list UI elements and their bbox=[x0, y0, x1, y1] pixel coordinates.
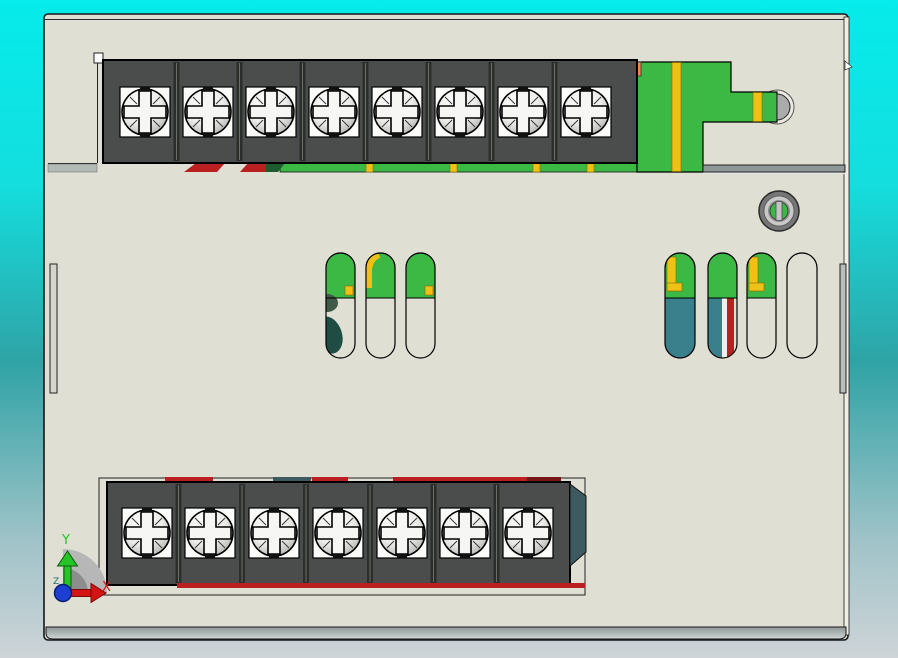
triad-origin-z[interactable] bbox=[55, 585, 72, 602]
terminal-screw[interactable] bbox=[498, 87, 548, 137]
screw-top-nub bbox=[205, 508, 215, 512]
screw-bottom-nub bbox=[142, 554, 152, 558]
screw-bottom-nub bbox=[329, 133, 339, 137]
terminal-screw[interactable] bbox=[435, 87, 485, 137]
pcb-yellow-tick bbox=[366, 163, 373, 172]
screw-top-nub bbox=[269, 508, 279, 512]
pcb-slot-right-2[interactable] bbox=[708, 253, 737, 360]
pcb-yellow-tick bbox=[587, 163, 594, 172]
trimmer-slot[interactable] bbox=[776, 202, 782, 221]
pcb-yellow-tick bbox=[533, 163, 540, 172]
slot-yellow-pad bbox=[425, 286, 433, 295]
screw-top-nub bbox=[581, 87, 591, 91]
slot-component-teal bbox=[665, 298, 695, 358]
pcb-green-strip bbox=[280, 163, 640, 172]
slot-white-stripe bbox=[722, 298, 727, 360]
screw-top-nub bbox=[266, 87, 276, 91]
pcb-slot-left-3[interactable] bbox=[406, 253, 435, 358]
screw-bottom-nub bbox=[397, 554, 407, 558]
screw-top-nub bbox=[523, 508, 533, 512]
screw-top-nub bbox=[142, 508, 152, 512]
enclosure-bottom-side bbox=[46, 627, 846, 639]
terminal-screw[interactable] bbox=[377, 508, 427, 558]
screw-top-nub bbox=[329, 87, 339, 91]
x-axis-label: X bbox=[102, 580, 111, 595]
slot-yellow-pad bbox=[345, 286, 353, 295]
y-axis-label: Y bbox=[61, 533, 70, 548]
terminal-screw[interactable] bbox=[120, 87, 170, 137]
slot-yellow-trace bbox=[667, 283, 682, 291]
slot-pcb-green bbox=[708, 253, 737, 298]
terminal-screw[interactable] bbox=[313, 508, 363, 558]
pcb-slot-right-3[interactable] bbox=[747, 253, 776, 358]
screw-bottom-nub bbox=[460, 554, 470, 558]
screw-top-nub bbox=[140, 87, 150, 91]
screw-top-nub bbox=[392, 87, 402, 91]
screw-top-nub bbox=[203, 87, 213, 91]
screw-top-nub bbox=[397, 508, 407, 512]
screw-bottom-nub bbox=[518, 133, 528, 137]
screw-bottom-nub bbox=[203, 133, 213, 137]
screw-bottom-nub bbox=[205, 554, 215, 558]
terminal-screw[interactable] bbox=[372, 87, 422, 137]
terminal-screw[interactable] bbox=[183, 87, 233, 137]
cad-viewport[interactable]: Y Z X bbox=[0, 0, 898, 658]
pcb-slot-left-2[interactable] bbox=[366, 253, 395, 358]
screw-bottom-nub bbox=[333, 554, 343, 558]
terminal-screw[interactable] bbox=[246, 87, 296, 137]
screw-bottom-nub bbox=[266, 133, 276, 137]
left-rail-slot[interactable] bbox=[50, 264, 57, 393]
slot-yellow-trace bbox=[749, 283, 764, 291]
pocket-corner-tab bbox=[94, 53, 103, 63]
pcb-yellow-stripe bbox=[672, 63, 681, 172]
terminal-screw[interactable] bbox=[503, 508, 553, 558]
terminal-end-face bbox=[570, 484, 586, 566]
slot-red-stripe bbox=[727, 298, 734, 360]
pcb-yellow-tick bbox=[450, 163, 457, 172]
screw-bottom-nub bbox=[455, 133, 465, 137]
bottom-terminal-block[interactable] bbox=[107, 482, 586, 588]
pcb-slot-right-1[interactable] bbox=[665, 253, 695, 358]
terminal-screw[interactable] bbox=[122, 508, 172, 558]
bottom-terminal-screws bbox=[122, 508, 553, 558]
screw-top-nub bbox=[455, 87, 465, 91]
pcb-edge-strip[interactable] bbox=[184, 163, 640, 172]
screw-bottom-nub bbox=[140, 133, 150, 137]
pcb-slot-right-4[interactable] bbox=[787, 253, 817, 358]
recess-step-bar bbox=[703, 165, 845, 172]
screw-top-nub bbox=[333, 508, 343, 512]
terminal-screw[interactable] bbox=[309, 87, 359, 137]
screw-bottom-nub bbox=[523, 554, 533, 558]
terminal-screw[interactable] bbox=[249, 508, 299, 558]
pcb-red-bottom-stripe bbox=[177, 583, 585, 588]
terminal-screw[interactable] bbox=[440, 508, 490, 558]
screw-top-nub bbox=[518, 87, 528, 91]
adjustment-hole[interactable] bbox=[759, 191, 799, 231]
screw-bottom-nub bbox=[392, 133, 402, 137]
pcb-slots-left-group[interactable] bbox=[311, 253, 435, 358]
right-rail-slot[interactable] bbox=[840, 264, 846, 393]
pcb-yellow-stripe-tab bbox=[753, 93, 762, 122]
screw-bottom-nub bbox=[269, 554, 279, 558]
screw-bottom-nub bbox=[581, 133, 591, 137]
pocket-shadow-strip bbox=[48, 164, 97, 172]
top-terminal-block[interactable] bbox=[103, 60, 637, 163]
screw-top-nub bbox=[460, 508, 470, 512]
terminal-screw[interactable] bbox=[561, 87, 611, 137]
terminal-screw[interactable] bbox=[185, 508, 235, 558]
